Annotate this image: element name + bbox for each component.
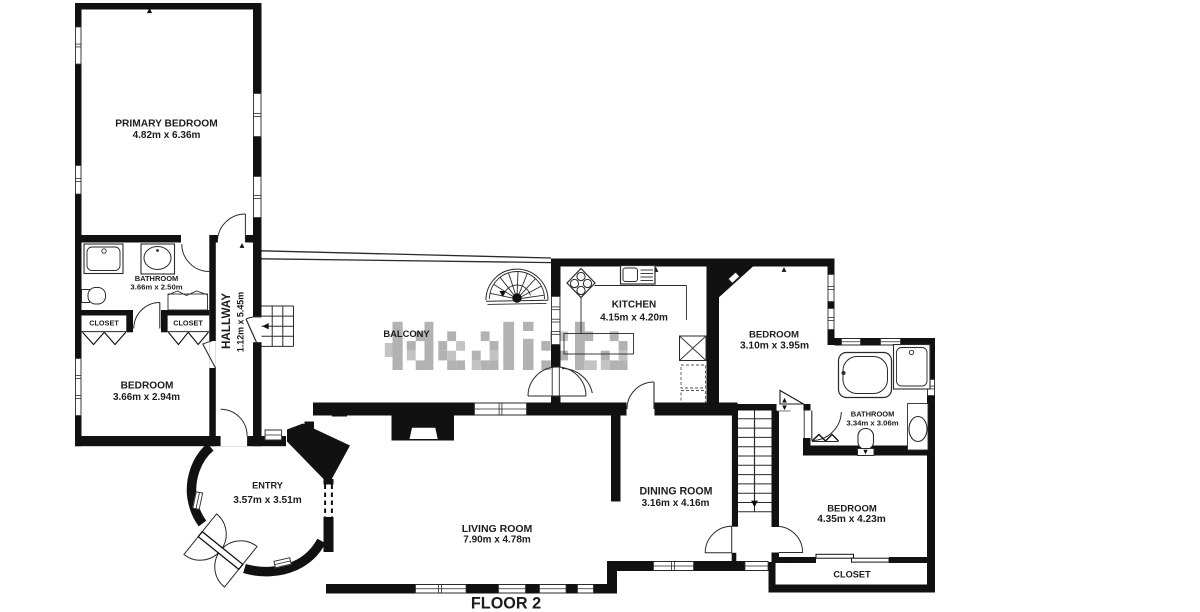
svg-text:HALLWAY: HALLWAY (220, 293, 233, 349)
svg-text:BALCONY: BALCONY (383, 328, 430, 339)
svg-text:CLOSET: CLOSET (173, 319, 203, 328)
svg-text:BATHROOM: BATHROOM (851, 410, 895, 419)
svg-text:BEDROOM: BEDROOM (749, 329, 799, 340)
svg-text:DINING ROOM: DINING ROOM (640, 486, 713, 498)
svg-text:3.57m x 3.51m: 3.57m x 3.51m (233, 495, 301, 506)
svg-text:3.66m x 2.50m: 3.66m x 2.50m (130, 283, 182, 292)
svg-text:BEDROOM: BEDROOM (827, 503, 877, 514)
svg-text:7.90m x 4.78m: 7.90m x 4.78m (463, 534, 531, 545)
svg-text:1.12m x 5.45m: 1.12m x 5.45m (236, 292, 246, 352)
svg-text:3.34m x 3.06m: 3.34m x 3.06m (846, 419, 898, 428)
svg-text:4.82m x 6.36m: 4.82m x 6.36m (133, 130, 201, 141)
svg-text:4.15m x 4.20m: 4.15m x 4.20m (600, 313, 668, 324)
svg-text:3.16m x 4.16m: 3.16m x 4.16m (642, 498, 710, 509)
svg-text:3.10m x 3.95m: 3.10m x 3.95m (740, 340, 809, 351)
svg-text:BEDROOM: BEDROOM (121, 381, 174, 392)
svg-text:4.35m x 4.23m: 4.35m x 4.23m (817, 514, 885, 525)
svg-text:3.66m x 2.94m: 3.66m x 2.94m (113, 392, 180, 403)
svg-text:CLOSET: CLOSET (89, 319, 119, 328)
svg-text:PRIMARY BEDROOM: PRIMARY BEDROOM (115, 119, 217, 130)
svg-text:KITCHEN: KITCHEN (612, 299, 656, 310)
svg-text:ENTRY: ENTRY (252, 481, 283, 491)
svg-text:FLOOR 2: FLOOR 2 (471, 594, 541, 612)
svg-text:CLOSET: CLOSET (833, 570, 871, 580)
